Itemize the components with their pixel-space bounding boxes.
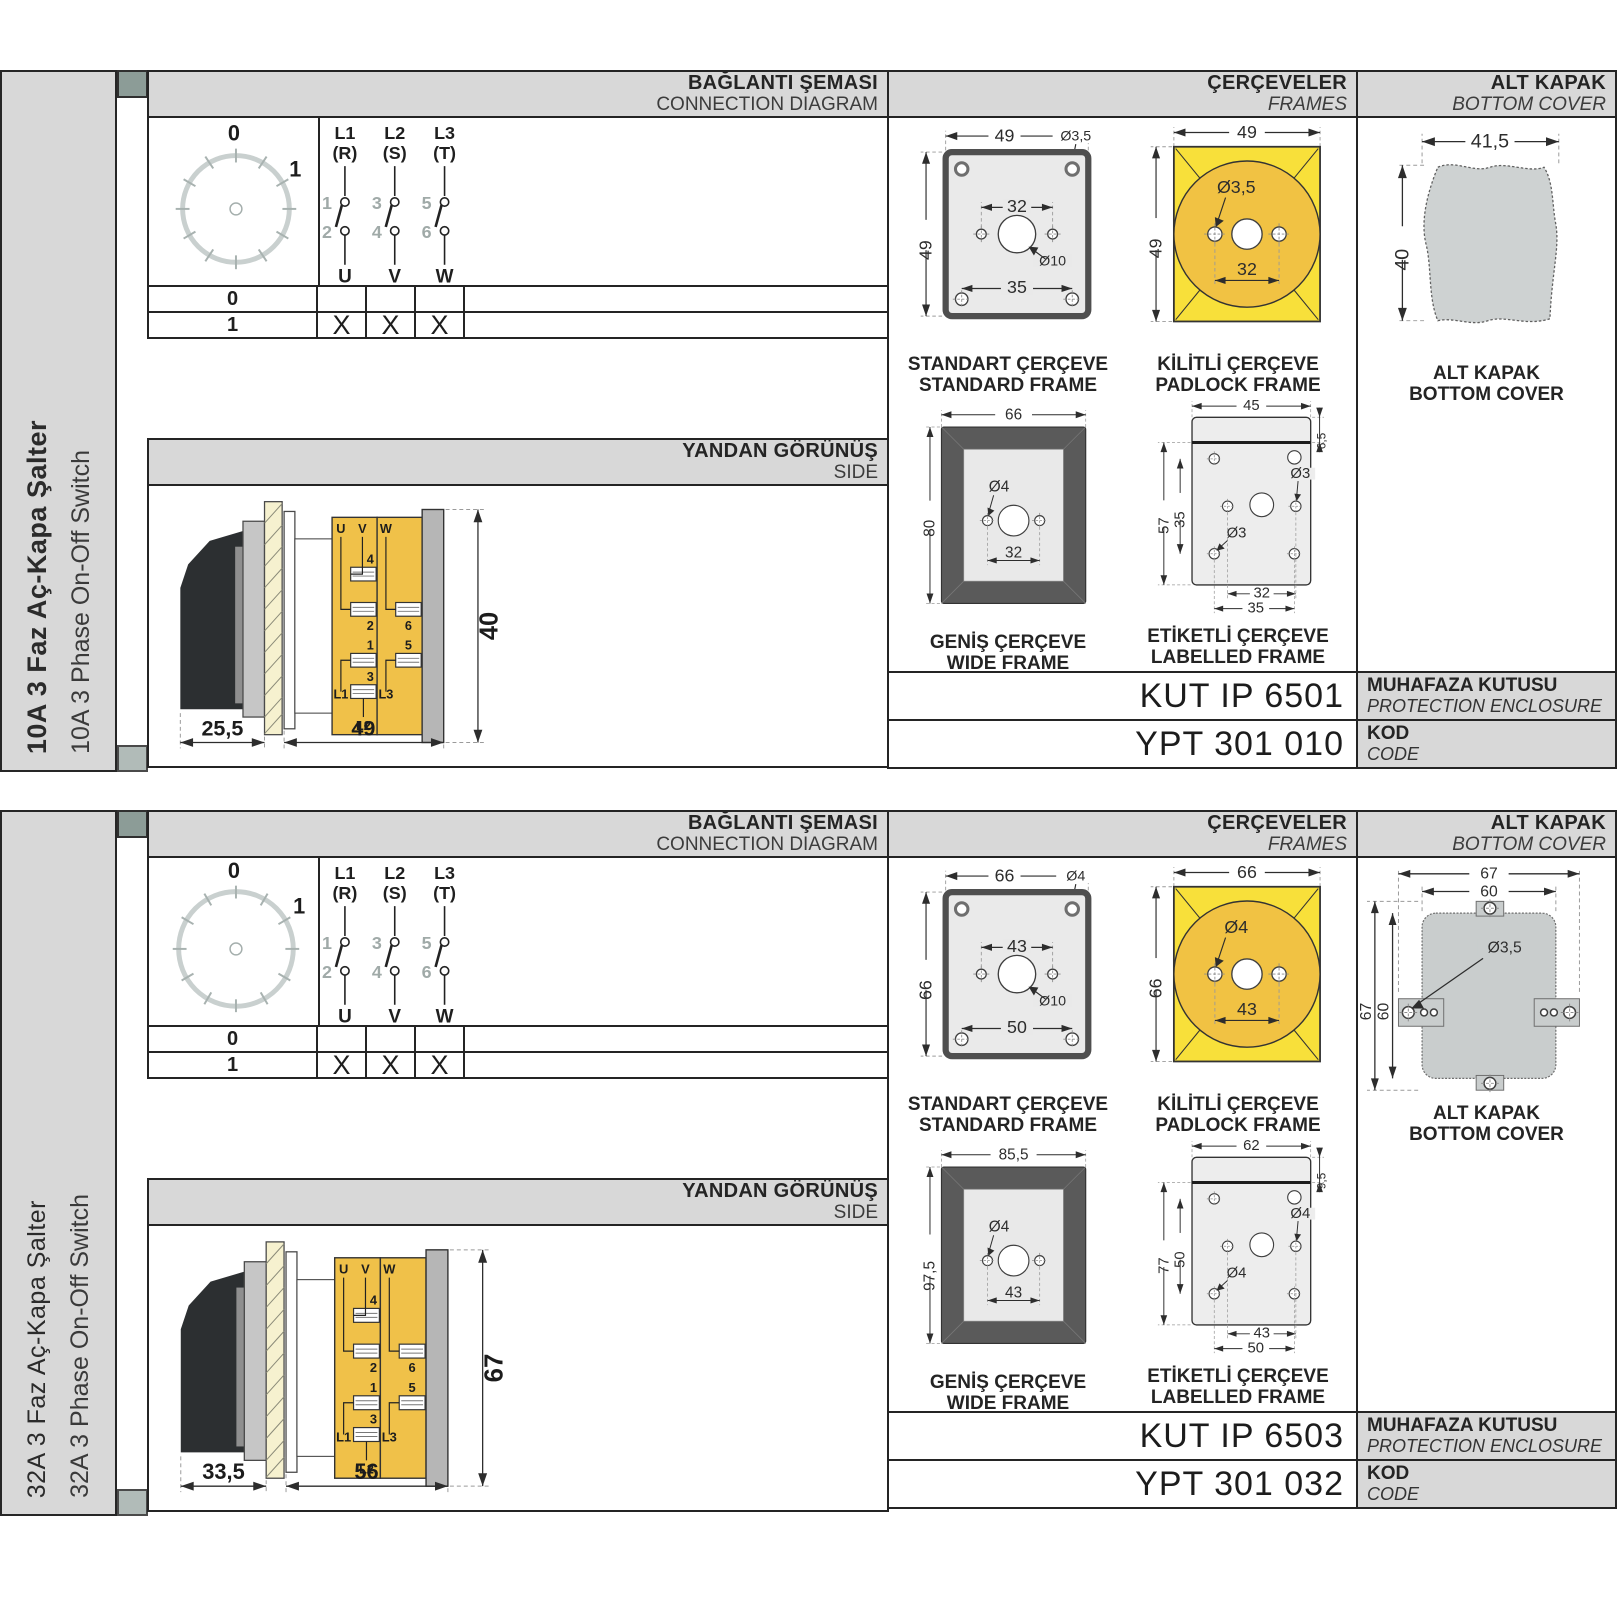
header-title-tr: ALT KAPAK (1491, 73, 1606, 94)
end-plate (422, 509, 444, 742)
dim-height: 80 (921, 520, 938, 537)
cover-body (1422, 913, 1556, 1078)
dim-span: 43 (1237, 999, 1257, 1019)
terminal-number: 3 (370, 1412, 377, 1427)
enclosure-label: MUHAFAZA KUTUSU PROTECTION ENCLOSURE (1356, 671, 1617, 721)
header-title-tr: BAĞLANTI ŞEMASI (688, 813, 878, 834)
padlock-frame-drawing: 49 Ø3,5 (1140, 120, 1336, 350)
code-label: KOD CODE (1356, 1459, 1617, 1509)
enclosure-label: MUHAFAZA KUTUSU PROTECTION ENCLOSURE (1356, 1411, 1617, 1461)
dim-height: 40 (1391, 249, 1413, 271)
labelled-frame-drawing: 45 6,5 57 (1149, 398, 1327, 622)
figure-caption-en: BOTTOM COVER (1358, 1125, 1615, 1146)
product-sidebar: 32A 3 Faz Aç-Kapa Şalter 32A 3 Phase On-… (0, 810, 117, 1516)
dim-hole: Ø4 (1290, 1206, 1310, 1222)
label-en: PROTECTION ENCLOSURE (1367, 1437, 1615, 1456)
dim-hole: Ø4 (1227, 1265, 1247, 1281)
panel-main: BAĞLANTI ŞEMASI CONNECTION DIAGRAM ÇERÇE… (147, 810, 1617, 1516)
contact-number: 5 (422, 933, 432, 953)
phase-label: L2 (384, 123, 405, 143)
terminal-number: 6 (409, 1360, 416, 1375)
dim-span: 32 (1007, 196, 1027, 216)
phase-alt-label: (R) (332, 143, 357, 163)
contacts-cell: L1 (R) 1 2 U L2 (S) (320, 118, 887, 285)
dim-height: 49 (915, 240, 935, 260)
panel-main: BAĞLANTI ŞEMASI CONNECTION DIAGRAM ÇERÇE… (147, 70, 1617, 772)
enclosure-row: KUT IP 6503 MUHAFAZA KUTUSU PROTECTION E… (887, 1411, 1617, 1461)
dim-height: 66 (915, 980, 935, 1000)
terminal-number: 1 (370, 1380, 377, 1395)
label-tr: MUHAFAZA KUTUSU (1367, 676, 1615, 697)
terminal-number: 4 (367, 551, 374, 566)
phase-l2: L2 (S) 3 4 V (372, 123, 407, 285)
phase-alt-label: (T) (433, 883, 456, 903)
product-codes: KUT IP 6501 MUHAFAZA KUTUSU PROTECTION E… (887, 671, 1617, 769)
wide-frame-drawing: 66 80 (920, 404, 1096, 628)
product-code: YPT 301 032 (887, 1459, 1358, 1509)
header-title-en: CONNECTION DIAGRAM (656, 835, 878, 855)
dim-hole: Ø3,5 (1488, 939, 1522, 956)
knob-hole (998, 1245, 1029, 1276)
header-title-en: FRAMES (1268, 835, 1347, 855)
figure-caption-tr: ALT KAPAK (1358, 1104, 1615, 1125)
contact-number: 4 (372, 222, 382, 242)
side-view-area: U V W 4 2 1 3 6 5 L1 L2 L3 25,5 (147, 484, 889, 768)
header-title-tr: YANDAN GÖRÜNÜŞ (682, 441, 878, 462)
standard-frame-figure: 66 Ø4 66 (895, 860, 1121, 1137)
catalog-page: 10A 3 Faz Aç-Kapa Şalter 10A 3 Phase On-… (0, 0, 1623, 1623)
dim-top-outer: 67 (1480, 866, 1497, 883)
phase-l2: L2 (S) 3 4 V (372, 863, 407, 1025)
header-title-tr: ÇERÇEVELER (1207, 813, 1347, 834)
spacer-square-top (117, 810, 148, 838)
dim-width: 45 (1243, 398, 1260, 414)
header-title-en: SIDE (834, 463, 878, 483)
terminal-label: V (388, 1007, 401, 1025)
bottom-cover-drawing: 41,5 40 (1359, 122, 1614, 362)
code-label: KOD CODE (1356, 719, 1617, 769)
contact-number: 4 (372, 962, 382, 982)
dim-hole: Ø4 (1224, 917, 1248, 937)
header-title-tr: ALT KAPAK (1491, 813, 1606, 834)
switch-dial-cell: 0 1 (149, 118, 320, 285)
standard-frame-drawing: 49 Ø3,5 49 (910, 120, 1106, 350)
connection-diagram-header: BAĞLANTI ŞEMASI CONNECTION DIAGRAM (147, 70, 889, 118)
wide-frame-figure: 85,5 97,5 (895, 1144, 1121, 1415)
product-title-en: 32A 3 Phase On-Off Switch (66, 1194, 95, 1498)
label-en: PROTECTION ENCLOSURE (1367, 697, 1615, 716)
side-view-header: YANDAN GÖRÜNÜŞ SIDE (147, 438, 889, 486)
bottom-cover-column: 41,5 40 ALT KAPAK BOTTOM COVER (1356, 116, 1617, 673)
terminal-label: U (338, 1007, 352, 1025)
dim-depth: 25,5 (201, 717, 243, 741)
dim-height: 66 (1145, 978, 1165, 998)
dim-hole: Ø3,5 (1217, 177, 1256, 197)
header-title-en: CONNECTION DIAGRAM (656, 95, 878, 115)
dial-position-off: 0 (228, 858, 240, 883)
dim-width: 41,5 (1471, 131, 1509, 153)
dial-position-on: 1 (293, 893, 305, 918)
dim-span: 35 (1248, 600, 1265, 616)
table-cell-empty (463, 311, 889, 339)
phase-label: L2 (384, 863, 405, 883)
table-cell: X (414, 311, 465, 339)
spacer-square-bottom (117, 745, 148, 772)
figure-caption-en: PADLOCK FRAME (1125, 376, 1351, 397)
padlock-frame-figure: 66 Ø4 (1125, 860, 1351, 1137)
product-code: YPT 301 010 (887, 719, 1358, 769)
wide-frame-drawing: 85,5 97,5 (920, 1144, 1096, 1368)
dim-width: 49 (995, 125, 1015, 145)
figure-caption-tr: GENİŞ ÇERÇEVE (895, 633, 1121, 654)
frames-column: 66 Ø4 66 (887, 856, 1358, 1413)
connection-diagram-header: BAĞLANTI ŞEMASI CONNECTION DIAGRAM (147, 810, 889, 858)
terminal-number: 2 (370, 1360, 377, 1375)
cover-body (1424, 165, 1557, 323)
header-title-tr: ÇERÇEVELER (1207, 73, 1347, 94)
figure-caption-tr: ALT KAPAK (1358, 364, 1615, 385)
dim-span: 43 (1253, 1326, 1270, 1342)
table-row: 1 X X X (147, 311, 889, 339)
contact-number: 2 (322, 222, 332, 242)
position-label: 0 (147, 1025, 318, 1053)
phase-l3: L3 (T) 5 6 W (422, 123, 456, 285)
enclosure-code: KUT IP 6503 (887, 1411, 1358, 1461)
knob-hole (1250, 1233, 1274, 1257)
standard-frame-drawing: 66 Ø4 66 (910, 860, 1106, 1090)
contact-number: 3 (372, 193, 382, 213)
figure-caption-en: PADLOCK FRAME (1125, 1116, 1351, 1137)
figure-caption-tr: KİLİTLİ ÇERÇEVE (1125, 355, 1351, 376)
enclosure-code: KUT IP 6501 (887, 671, 1358, 721)
dim-span: 32 (1253, 586, 1270, 602)
phase-label: L3 (434, 863, 455, 883)
connection-diagram-box: 0 1 L1 (R) 1 2 U (147, 856, 889, 1027)
dim-span: 32 (1005, 544, 1022, 561)
table-cell: X (414, 1051, 465, 1079)
figure-caption-tr: GENİŞ ÇERÇEVE (895, 1373, 1121, 1394)
switch-handle (181, 1272, 245, 1453)
terminal-number: 6 (405, 618, 412, 633)
terminal-letter: U (336, 521, 345, 536)
frames-column: 49 Ø3,5 49 (887, 116, 1358, 673)
switching-table: 0 1 X X X (147, 285, 889, 339)
label-tr: KOD (1367, 724, 1615, 745)
table-cell: X (365, 311, 416, 339)
connection-diagram-box: 0 1 L1 (R) 1 2 U (147, 116, 889, 287)
dim-left-inner: 60 (1376, 1003, 1393, 1021)
dim-width: 49 (1237, 122, 1257, 142)
header-title-en: FRAMES (1268, 95, 1347, 115)
table-row: 0 (147, 285, 889, 313)
terminal-number: 5 (405, 637, 412, 652)
contact-number: 5 (422, 193, 432, 213)
header-title-en: BOTTOM COVER (1452, 835, 1606, 855)
phase-alt-label: (T) (433, 143, 456, 163)
dim-width: 66 (995, 865, 1015, 885)
dim-inner-height: 50 (1173, 1251, 1189, 1268)
label-tr: MUHAFAZA KUTUSU (1367, 1416, 1615, 1437)
figure-caption-tr: ETİKETLİ ÇERÇEVE (1125, 627, 1351, 648)
labelled-frame-drawing: 62 9,5 77 (1149, 1138, 1327, 1362)
dim-left-outer: 67 (1359, 1003, 1375, 1020)
product-title-tr: 10A 3 Faz Aç-Kapa Şalter (22, 420, 53, 754)
table-cell-empty (463, 1051, 889, 1079)
terminal-letter: L3 (382, 1429, 397, 1444)
terminal-number: 4 (370, 1292, 378, 1307)
phase-alt-label: (S) (383, 143, 407, 163)
contact-number: 1 (322, 193, 332, 213)
phase-l1: L1 (R) 1 2 U (322, 863, 357, 1025)
table-cell: X (365, 1051, 416, 1079)
position-label: 0 (147, 285, 318, 313)
terminal-label: V (388, 267, 401, 285)
switch-dial-cell: 0 1 (149, 858, 320, 1025)
terminal-label: W (436, 1007, 454, 1025)
figure-caption-en: LABELLED FRAME (1125, 1388, 1351, 1409)
dim-height: 77 (1156, 1257, 1172, 1274)
frames-header: ÇERÇEVELER FRAMES (887, 810, 1358, 858)
label-tr: KOD (1367, 1464, 1615, 1485)
dim-height: 97,5 (921, 1261, 938, 1291)
spacer-square-bottom (117, 1489, 148, 1516)
dim-width: 49 (351, 717, 375, 741)
labelled-frame-figure: 62 9,5 77 (1125, 1138, 1351, 1409)
terminal-label: U (338, 267, 352, 285)
knob-hole (1250, 493, 1274, 517)
switch-dial-drawing: 0 1 (149, 118, 318, 285)
switch-handle (180, 531, 243, 709)
figure-caption-en: STANDARD FRAME (895, 1116, 1121, 1137)
bottom-cover-column: 67 60 67 60 (1356, 856, 1617, 1413)
contact-number: 2 (322, 962, 332, 982)
terminal-letter: U (339, 1262, 348, 1277)
product-title-tr: 32A 3 Faz Aç-Kapa Şalter (23, 1200, 52, 1498)
dim-knob: Ø10 (1039, 253, 1066, 269)
frames-header: ÇERÇEVELER FRAMES (887, 70, 1358, 118)
dim-depth: 33,5 (202, 1459, 244, 1484)
phase-alt-label: (R) (332, 883, 357, 903)
table-row: 1 X X X (147, 1051, 889, 1079)
label-en: CODE (1367, 745, 1615, 764)
front-plate (244, 1262, 266, 1461)
side-view-drawing: U V W 4 2 1 3 6 5 L1 L2 L3 25,5 (149, 486, 887, 766)
header-title-en: SIDE (834, 1203, 878, 1223)
spacer-square-top (117, 70, 148, 98)
dim-height: 67 (481, 1354, 509, 1383)
contacts-drawing: L1 (R) 1 2 U L2 (S) (320, 858, 887, 1025)
product-title-en: 10A 3 Phase On-Off Switch (67, 450, 96, 754)
bottom-cover-header: ALT KAPAK BOTTOM COVER (1356, 810, 1617, 858)
contacts-drawing: L1 (R) 1 2 U L2 (S) (320, 118, 887, 285)
dim-hole: Ø4 (1066, 869, 1085, 885)
header-title-en: BOTTOM COVER (1452, 95, 1606, 115)
figure-caption-tr: STANDART ÇERÇEVE (895, 1095, 1121, 1116)
dim-strip: 9,5 (1315, 1172, 1327, 1189)
dim-hole: Ø3,5 (1060, 129, 1091, 145)
terminal-letter: V (358, 521, 367, 536)
phase-alt-label: (S) (383, 883, 407, 903)
terminal-letter: W (383, 1262, 396, 1277)
figure-caption-en: LABELLED FRAME (1125, 648, 1351, 669)
dial-position-on: 1 (289, 156, 301, 181)
mount-hole (1288, 1191, 1301, 1204)
dim-width: 66 (1005, 406, 1022, 423)
enclosure-row: KUT IP 6501 MUHAFAZA KUTUSU PROTECTION E… (887, 671, 1617, 721)
switch-body (380, 1258, 426, 1478)
dim-strip: 6,5 (1315, 432, 1327, 449)
side-view-area: U V W 4 2 1 3 6 5 L1 L2 L3 33,5 (147, 1224, 889, 1512)
dim-span: 43 (1005, 1284, 1022, 1301)
switch-body (377, 517, 422, 734)
dim-knob: Ø10 (1039, 993, 1066, 1009)
phase-label: L1 (334, 123, 355, 143)
dim-span: 50 (1248, 1340, 1265, 1356)
dim-inner-height: 35 (1173, 511, 1189, 528)
terminal-number: 1 (367, 637, 374, 652)
dim-span: 32 (1237, 259, 1257, 279)
dial-position-off: 0 (228, 121, 240, 146)
figure-caption-tr: KİLİTLİ ÇERÇEVE (1125, 1095, 1351, 1116)
figure-caption-en: STANDARD FRAME (895, 376, 1121, 397)
phase-l3: L3 (T) 5 6 W (422, 863, 456, 1025)
dim-hole: Ø3 (1290, 466, 1310, 482)
terminal-number: 3 (367, 669, 374, 684)
contact-number: 1 (322, 933, 332, 953)
dim-top-inner: 60 (1480, 883, 1498, 900)
side-view-header: YANDAN GÖRÜNÜŞ SIDE (147, 1178, 889, 1226)
dim-span: 50 (1007, 1017, 1027, 1037)
dim-hole: Ø3 (1227, 525, 1247, 541)
dim-width: 56 (354, 1459, 378, 1484)
contact-number: 3 (372, 933, 382, 953)
position-label: 1 (147, 1051, 318, 1079)
figure-caption-tr: STANDART ÇERÇEVE (895, 355, 1121, 376)
table-cell: X (316, 311, 367, 339)
contact-number: 6 (422, 962, 432, 982)
side-view-drawing: U V W 4 2 1 3 6 5 L1 L2 L3 33,5 (149, 1226, 887, 1510)
knob-hole (1232, 959, 1262, 989)
end-plate (426, 1250, 448, 1486)
product-codes: KUT IP 6503 MUHAFAZA KUTUSU PROTECTION E… (887, 1411, 1617, 1509)
dim-width: 62 (1243, 1138, 1260, 1154)
phase-label: L3 (434, 123, 455, 143)
product-panel-32a: 32A 3 Faz Aç-Kapa Şalter 32A 3 Phase On-… (0, 810, 1623, 1516)
figure-caption-tr: ETİKETLİ ÇERÇEVE (1125, 1367, 1351, 1388)
position-label: 1 (147, 311, 318, 339)
table-row: 0 (147, 1025, 889, 1053)
mount-hole (1288, 451, 1301, 464)
dim-height: 57 (1156, 517, 1172, 534)
padlock-frame-drawing: 66 Ø4 (1140, 860, 1336, 1090)
knob-hole (1232, 219, 1262, 249)
dim-span: 35 (1007, 277, 1027, 297)
terminal-letter: V (361, 1262, 370, 1277)
product-panel-10a: 10A 3 Faz Aç-Kapa Şalter 10A 3 Phase On-… (0, 70, 1623, 772)
table-cell: X (316, 1051, 367, 1079)
dim-width: 85,5 (998, 1146, 1028, 1163)
switching-table: 0 1 X X X (147, 1025, 889, 1079)
bottom-cover-header: ALT KAPAK BOTTOM COVER (1356, 70, 1617, 118)
contacts-cell: L1 (R) 1 2 U L2 (S) (320, 858, 887, 1025)
table-cell-empty (463, 285, 889, 313)
code-row: YPT 301 032 KOD CODE (887, 1459, 1617, 1509)
wide-frame-figure: 66 80 (895, 404, 1121, 675)
terminal-letter: W (380, 521, 392, 536)
dim-hole: Ø4 (989, 1218, 1010, 1235)
dim-span: 43 (1007, 936, 1027, 956)
figure-caption-en: BOTTOM COVER (1358, 385, 1615, 406)
label-en: CODE (1367, 1485, 1615, 1504)
header-title-tr: YANDAN GÖRÜNÜŞ (682, 1181, 878, 1202)
terminal-number: 5 (409, 1380, 416, 1395)
phase-label: L1 (334, 863, 355, 883)
code-row: YPT 301 010 KOD CODE (887, 719, 1617, 769)
terminal-number: 2 (367, 618, 374, 633)
product-sidebar: 10A 3 Faz Aç-Kapa Şalter 10A 3 Phase On-… (0, 70, 117, 772)
dim-height: 49 (1145, 238, 1165, 258)
bottom-cover-drawing: 67 60 67 60 (1359, 862, 1614, 1102)
labelled-frame-figure: 45 6,5 57 (1125, 398, 1351, 669)
terminal-letter: L1 (333, 686, 348, 701)
dim-width: 66 (1237, 862, 1257, 882)
dim-height: 40 (476, 612, 504, 640)
switch-dial-drawing: 0 1 (149, 858, 318, 1025)
terminal-label: W (436, 267, 454, 285)
contact-number: 6 (422, 222, 432, 242)
padlock-frame-figure: 49 Ø3,5 (1125, 120, 1351, 397)
standard-frame-figure: 49 Ø3,5 49 (895, 120, 1121, 397)
terminal-letter: L1 (336, 1429, 351, 1444)
front-plate (243, 521, 265, 717)
dim-hole: Ø4 (989, 478, 1010, 495)
table-cell-empty (463, 1025, 889, 1053)
terminal-letter: L3 (379, 686, 394, 701)
knob-hole (998, 505, 1029, 536)
header-title-tr: BAĞLANTI ŞEMASI (688, 73, 878, 94)
phase-l1: L1 (R) 1 2 U (322, 123, 357, 285)
